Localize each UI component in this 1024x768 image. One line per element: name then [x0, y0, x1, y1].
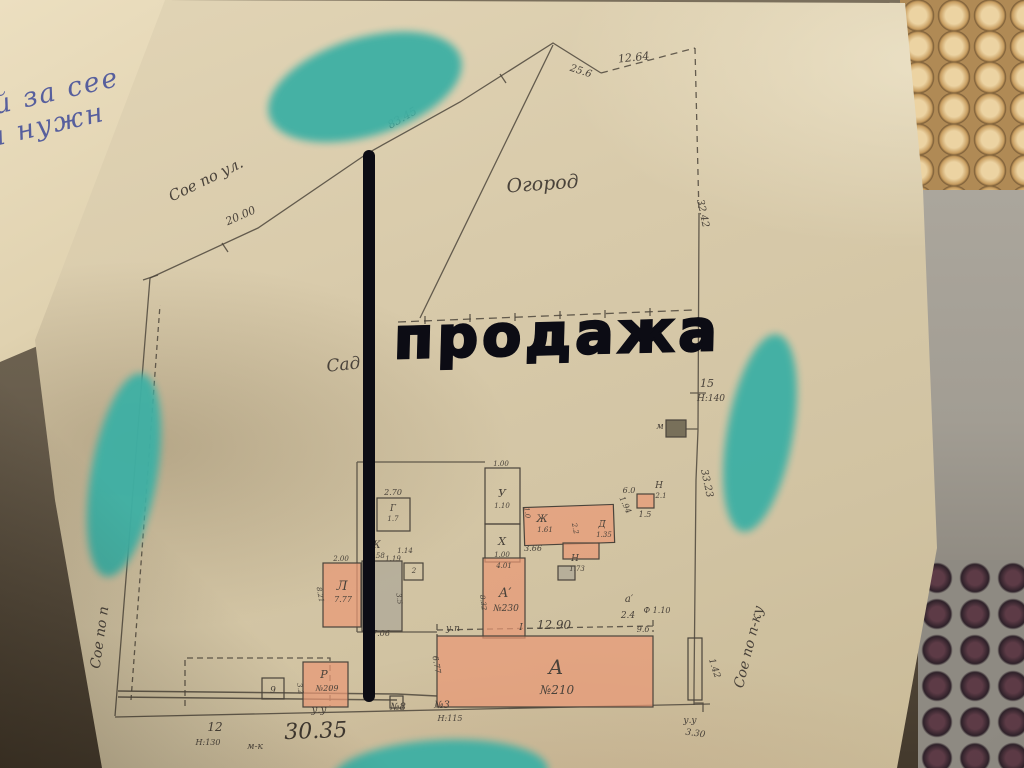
- map-label: 20.00: [223, 203, 258, 228]
- map-label: у.у: [682, 716, 697, 726]
- map-label: 1.10: [494, 502, 510, 510]
- map-label: 1.42: [706, 657, 722, 679]
- map-label: Х: [497, 535, 507, 548]
- map-label: м: [656, 422, 663, 432]
- map-label: 2.1: [654, 492, 666, 500]
- map-label: Г: [389, 504, 397, 514]
- map-label: Д: [597, 520, 606, 530]
- map-label: №3: [433, 700, 450, 711]
- map-label: 12: [207, 720, 222, 734]
- map-label: №209: [315, 684, 339, 693]
- map-label: Н:140: [696, 394, 725, 404]
- building-annex-zh-tab: [563, 543, 599, 559]
- map-label: Сое по п-ку: [731, 603, 767, 689]
- building-boundary-shed: [666, 420, 686, 437]
- map-label: Ф 1.10: [644, 606, 671, 615]
- map-label: 1.19: [385, 555, 401, 563]
- map-label: м-к: [247, 742, 264, 752]
- black-division-marker-line: [363, 150, 375, 702]
- map-label: 6.0: [623, 486, 636, 495]
- map-label: 1.0: [522, 507, 532, 520]
- map-label: 1.73: [569, 565, 585, 573]
- map-label: 2.4: [620, 611, 636, 621]
- map-label: 3.30: [685, 728, 707, 741]
- map-label: 8.32: [478, 594, 488, 611]
- map-label: Н:115: [437, 714, 463, 723]
- map-label: 2.00: [332, 555, 349, 563]
- map-label: 1.00: [494, 551, 510, 559]
- labels-layer: Сое по ул.20.0083.4525.612.64ОгородСад32…: [88, 49, 768, 752]
- map-label: Сое по ул.: [166, 154, 246, 206]
- map-label: 1.5: [639, 510, 652, 519]
- map-label: У: [498, 487, 507, 500]
- map-label: 4.01: [495, 562, 512, 570]
- map-label: А′: [498, 586, 512, 601]
- map-label: Сад: [326, 353, 362, 376]
- map-label: 1.35: [596, 531, 612, 539]
- map-label: 2: [411, 567, 417, 575]
- map-label: у.у: [311, 705, 327, 716]
- map-label: 9.б: [637, 625, 650, 634]
- map-label: №230: [492, 604, 519, 614]
- building-edge-strip: [688, 638, 702, 700]
- map-label: Л: [336, 579, 349, 594]
- map-label: 1.94: [617, 495, 633, 515]
- map-label: 32.42: [694, 198, 711, 228]
- map-label: 1.00: [493, 460, 509, 468]
- map-label: 1.7: [387, 515, 399, 523]
- map-label: Р: [319, 668, 328, 681]
- map-label: 8.21: [315, 586, 326, 603]
- map-label: Н: [654, 481, 663, 491]
- map-label: 7.77: [334, 595, 353, 604]
- map-label: Н: [570, 554, 579, 564]
- map-label: а′: [625, 594, 634, 605]
- map-label: 12.64: [617, 49, 650, 65]
- map-label: у.п: [445, 624, 460, 634]
- map-label: Сое по п: [88, 605, 113, 669]
- map-label: 6.77: [430, 655, 442, 675]
- map-label: №210: [539, 683, 575, 697]
- map-label: №8: [389, 702, 406, 713]
- map-label: А: [546, 655, 563, 679]
- right-boundary-dashed-top: [695, 48, 699, 215]
- map-label: 2.70: [383, 488, 402, 497]
- map-label: 3.5: [394, 593, 404, 606]
- map-label: 15: [700, 377, 714, 390]
- building-small-n21: [637, 494, 654, 508]
- map-label: 33.23: [698, 468, 715, 498]
- map-label: 1.14: [397, 547, 413, 555]
- sale-annotation-text: продажа: [393, 298, 722, 373]
- map-label: I: [518, 623, 523, 633]
- photo-of-plot-plan: й за сее и нужн Сое по ул.20.0083.4525.6…: [0, 0, 1024, 768]
- map-label: Ж: [535, 514, 548, 525]
- map-label: 12.90: [537, 618, 572, 632]
- map-label: 9: [270, 686, 276, 696]
- map-label: Н:130: [195, 738, 221, 747]
- map-label: 30.35: [284, 718, 348, 745]
- map-label: Огород: [506, 171, 580, 198]
- buildings-layer: [262, 420, 702, 708]
- map-label: 1.61: [537, 526, 553, 534]
- map-label: 3.66: [524, 544, 542, 553]
